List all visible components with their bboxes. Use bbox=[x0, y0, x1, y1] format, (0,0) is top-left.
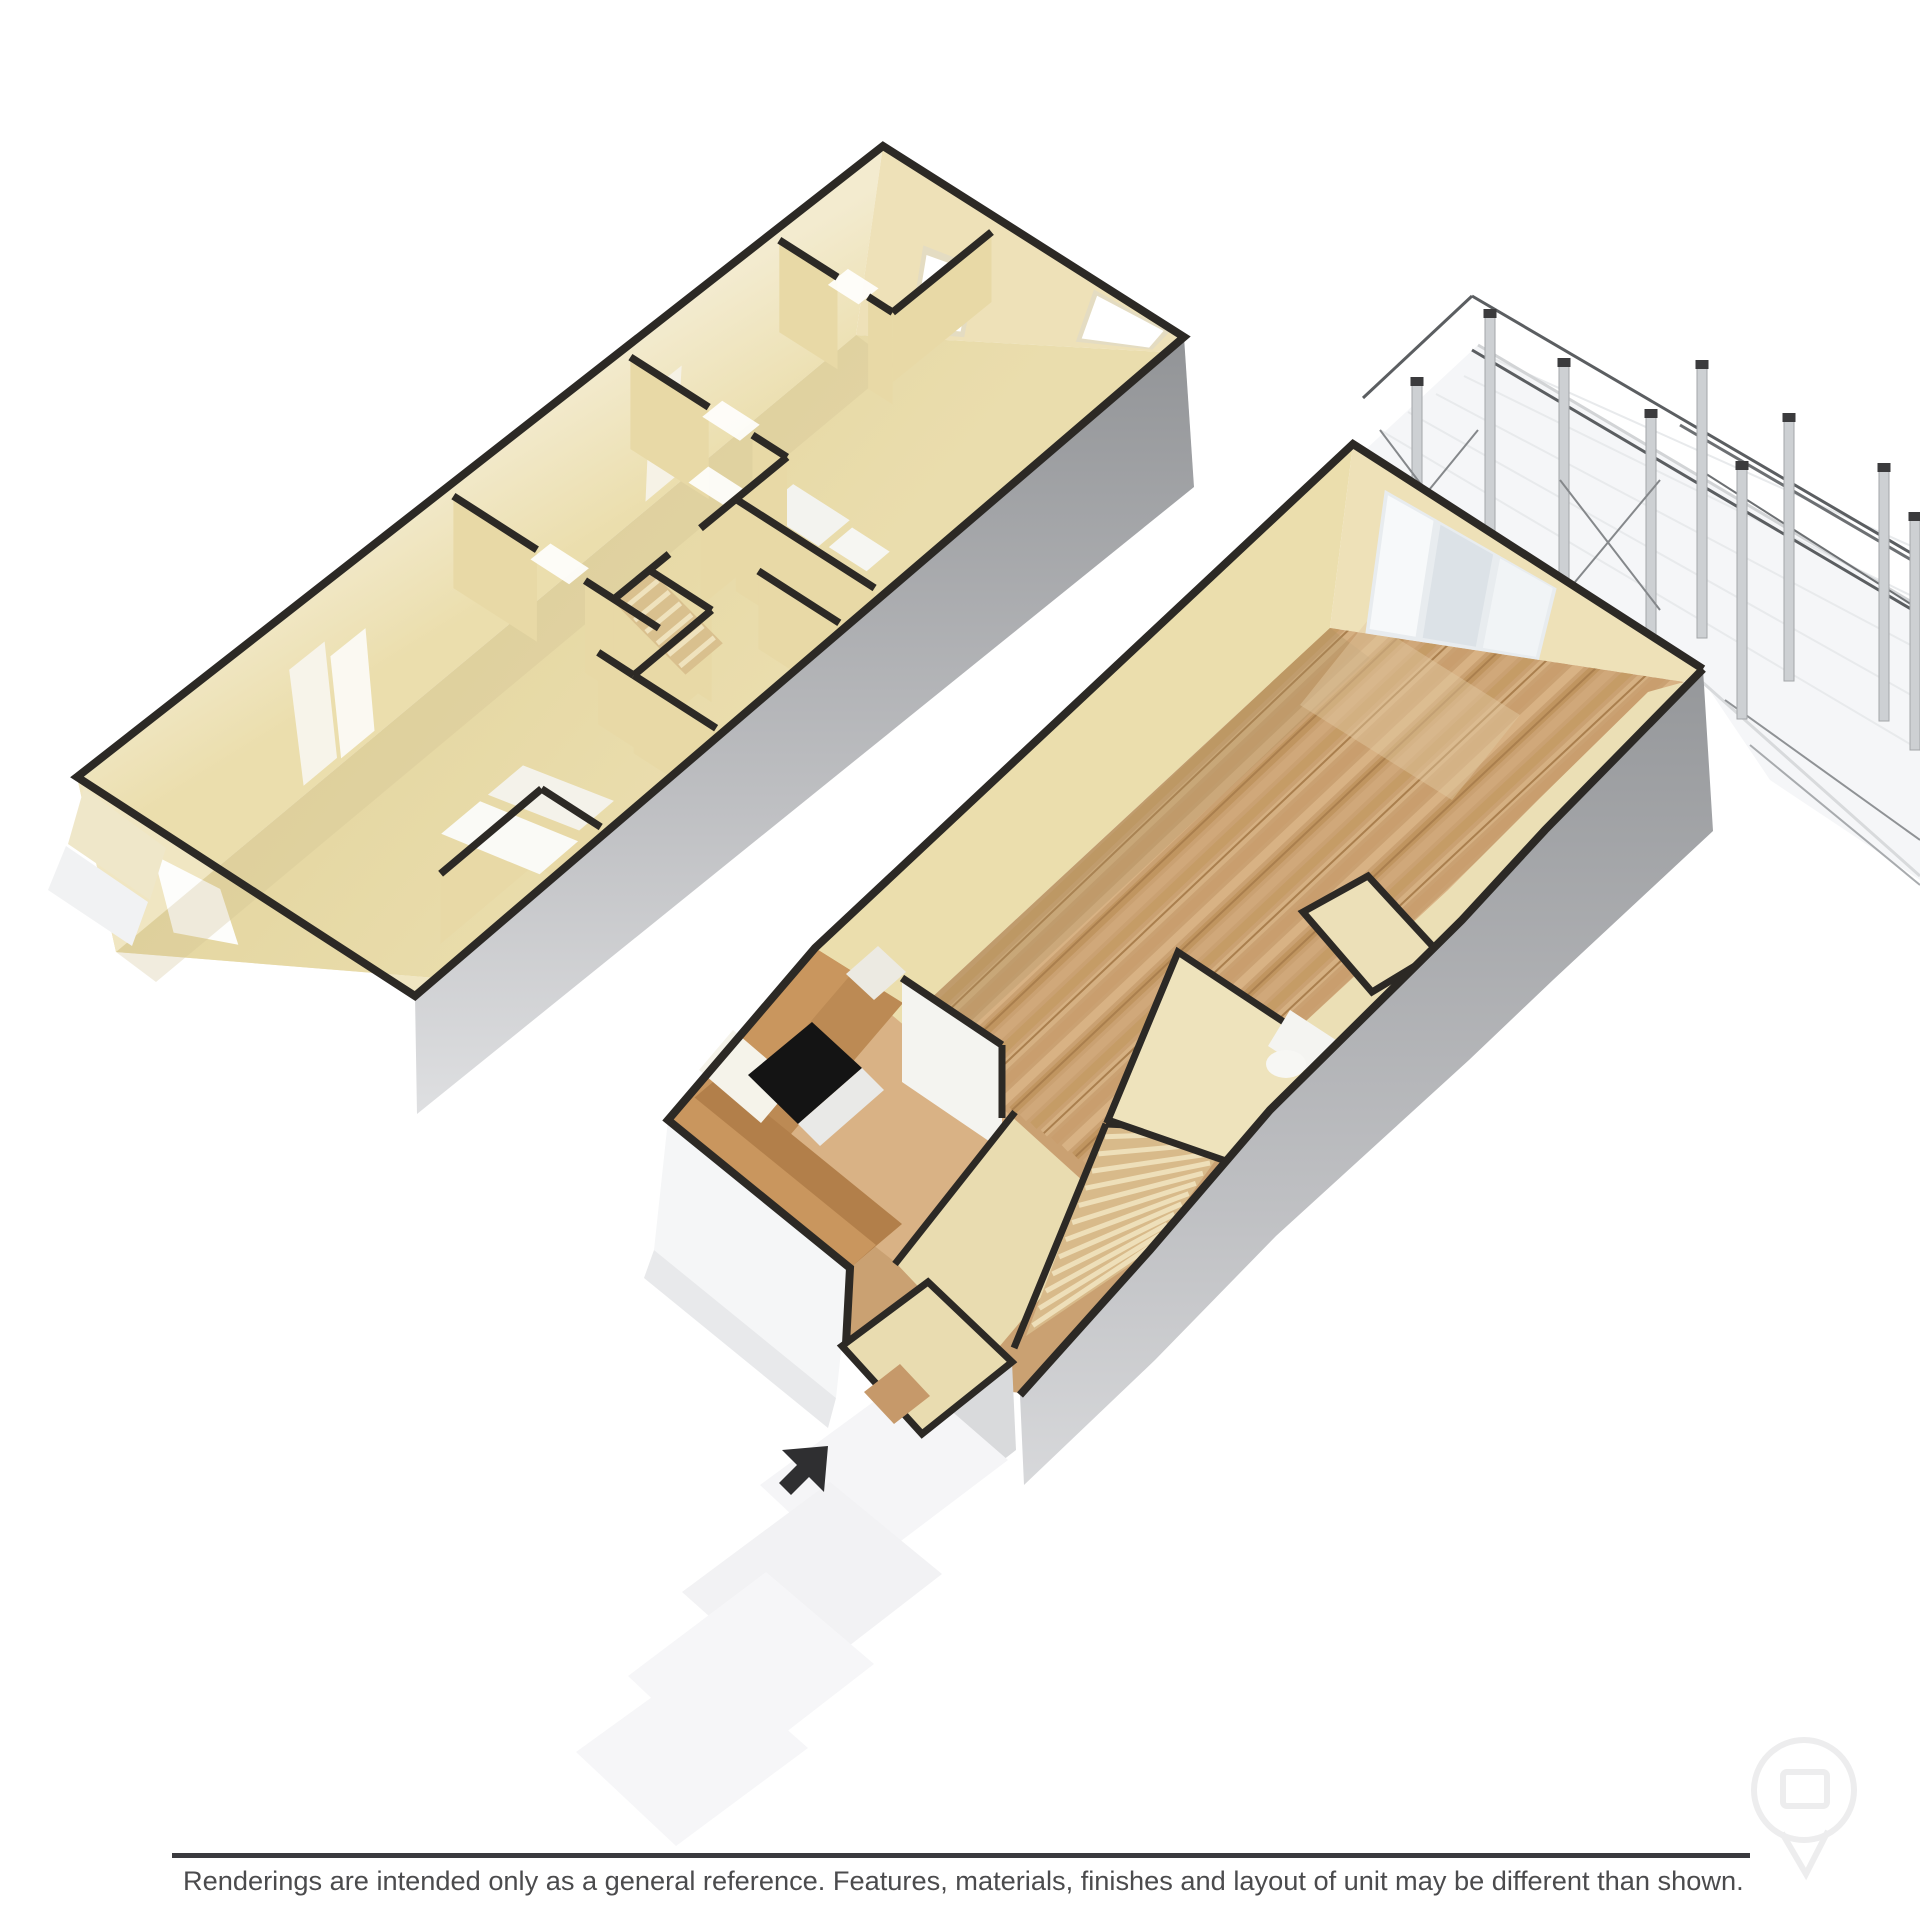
svg-text:Renderings are intended only a: Renderings are intended only as a genera… bbox=[183, 1865, 1744, 1896]
